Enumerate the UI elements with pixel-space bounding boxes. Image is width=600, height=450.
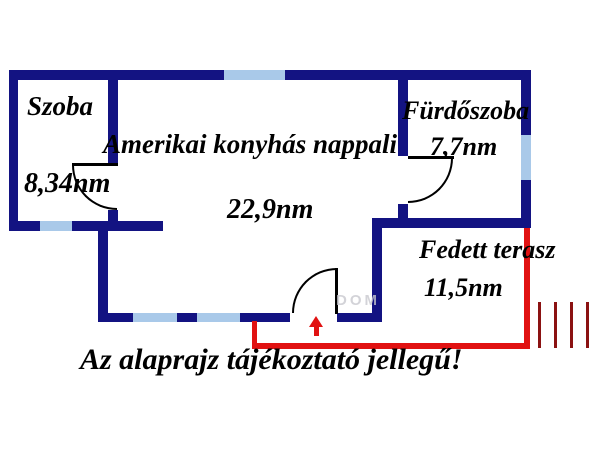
window-right-bathroom bbox=[521, 135, 531, 180]
wall-living-bottom-b bbox=[177, 313, 197, 322]
window-szoba-bottom bbox=[40, 221, 72, 231]
room-area-nappali: 22,9nm bbox=[227, 196, 313, 224]
window-living-bottom-1 bbox=[133, 313, 177, 322]
wall-bathroom-divider-stub bbox=[398, 204, 408, 220]
room-area-furdoszoba: 7,7nm bbox=[430, 134, 497, 160]
wall-szoba-bottom bbox=[9, 221, 163, 231]
room-label-nappali: Amerikai konyhás nappali bbox=[103, 131, 397, 158]
room-area-szoba: 8,34nm bbox=[24, 170, 110, 198]
wall-living-bottom-c bbox=[240, 313, 290, 322]
hatch-line-3 bbox=[570, 302, 573, 348]
watermark-text: DOM bbox=[336, 292, 380, 309]
room-label-terasz: Fedett terasz bbox=[419, 237, 556, 263]
wall-living-bottom-a bbox=[98, 313, 133, 322]
hatch-line-4 bbox=[586, 302, 589, 348]
floorplan-canvas: DOM Szoba 8,34nm Amerikai konyhás nappal… bbox=[0, 0, 600, 450]
window-living-bottom-2 bbox=[197, 313, 240, 322]
entry-arrow-up-icon bbox=[309, 316, 323, 337]
room-label-furdoszoba: Fürdőszoba bbox=[402, 98, 529, 124]
wall-bathroom-bottom bbox=[372, 218, 531, 228]
hatch-line-1 bbox=[538, 302, 541, 348]
hatch-line-2 bbox=[554, 302, 557, 348]
disclaimer-text: Az alaprajz tájékoztató jellegű! bbox=[80, 345, 463, 375]
room-label-szoba: Szoba bbox=[27, 93, 93, 120]
entry-arrow-shaft bbox=[314, 327, 319, 336]
wall-step-left bbox=[98, 224, 108, 319]
window-top-living bbox=[224, 70, 285, 80]
entry-door-arc bbox=[292, 268, 337, 313]
wall-left bbox=[9, 70, 18, 231]
entry-arrow-head bbox=[309, 316, 323, 327]
bathroom-door-arc bbox=[408, 158, 453, 203]
wall-szoba-divider-stub bbox=[108, 210, 118, 222]
room-area-terasz: 11,5nm bbox=[424, 275, 503, 301]
